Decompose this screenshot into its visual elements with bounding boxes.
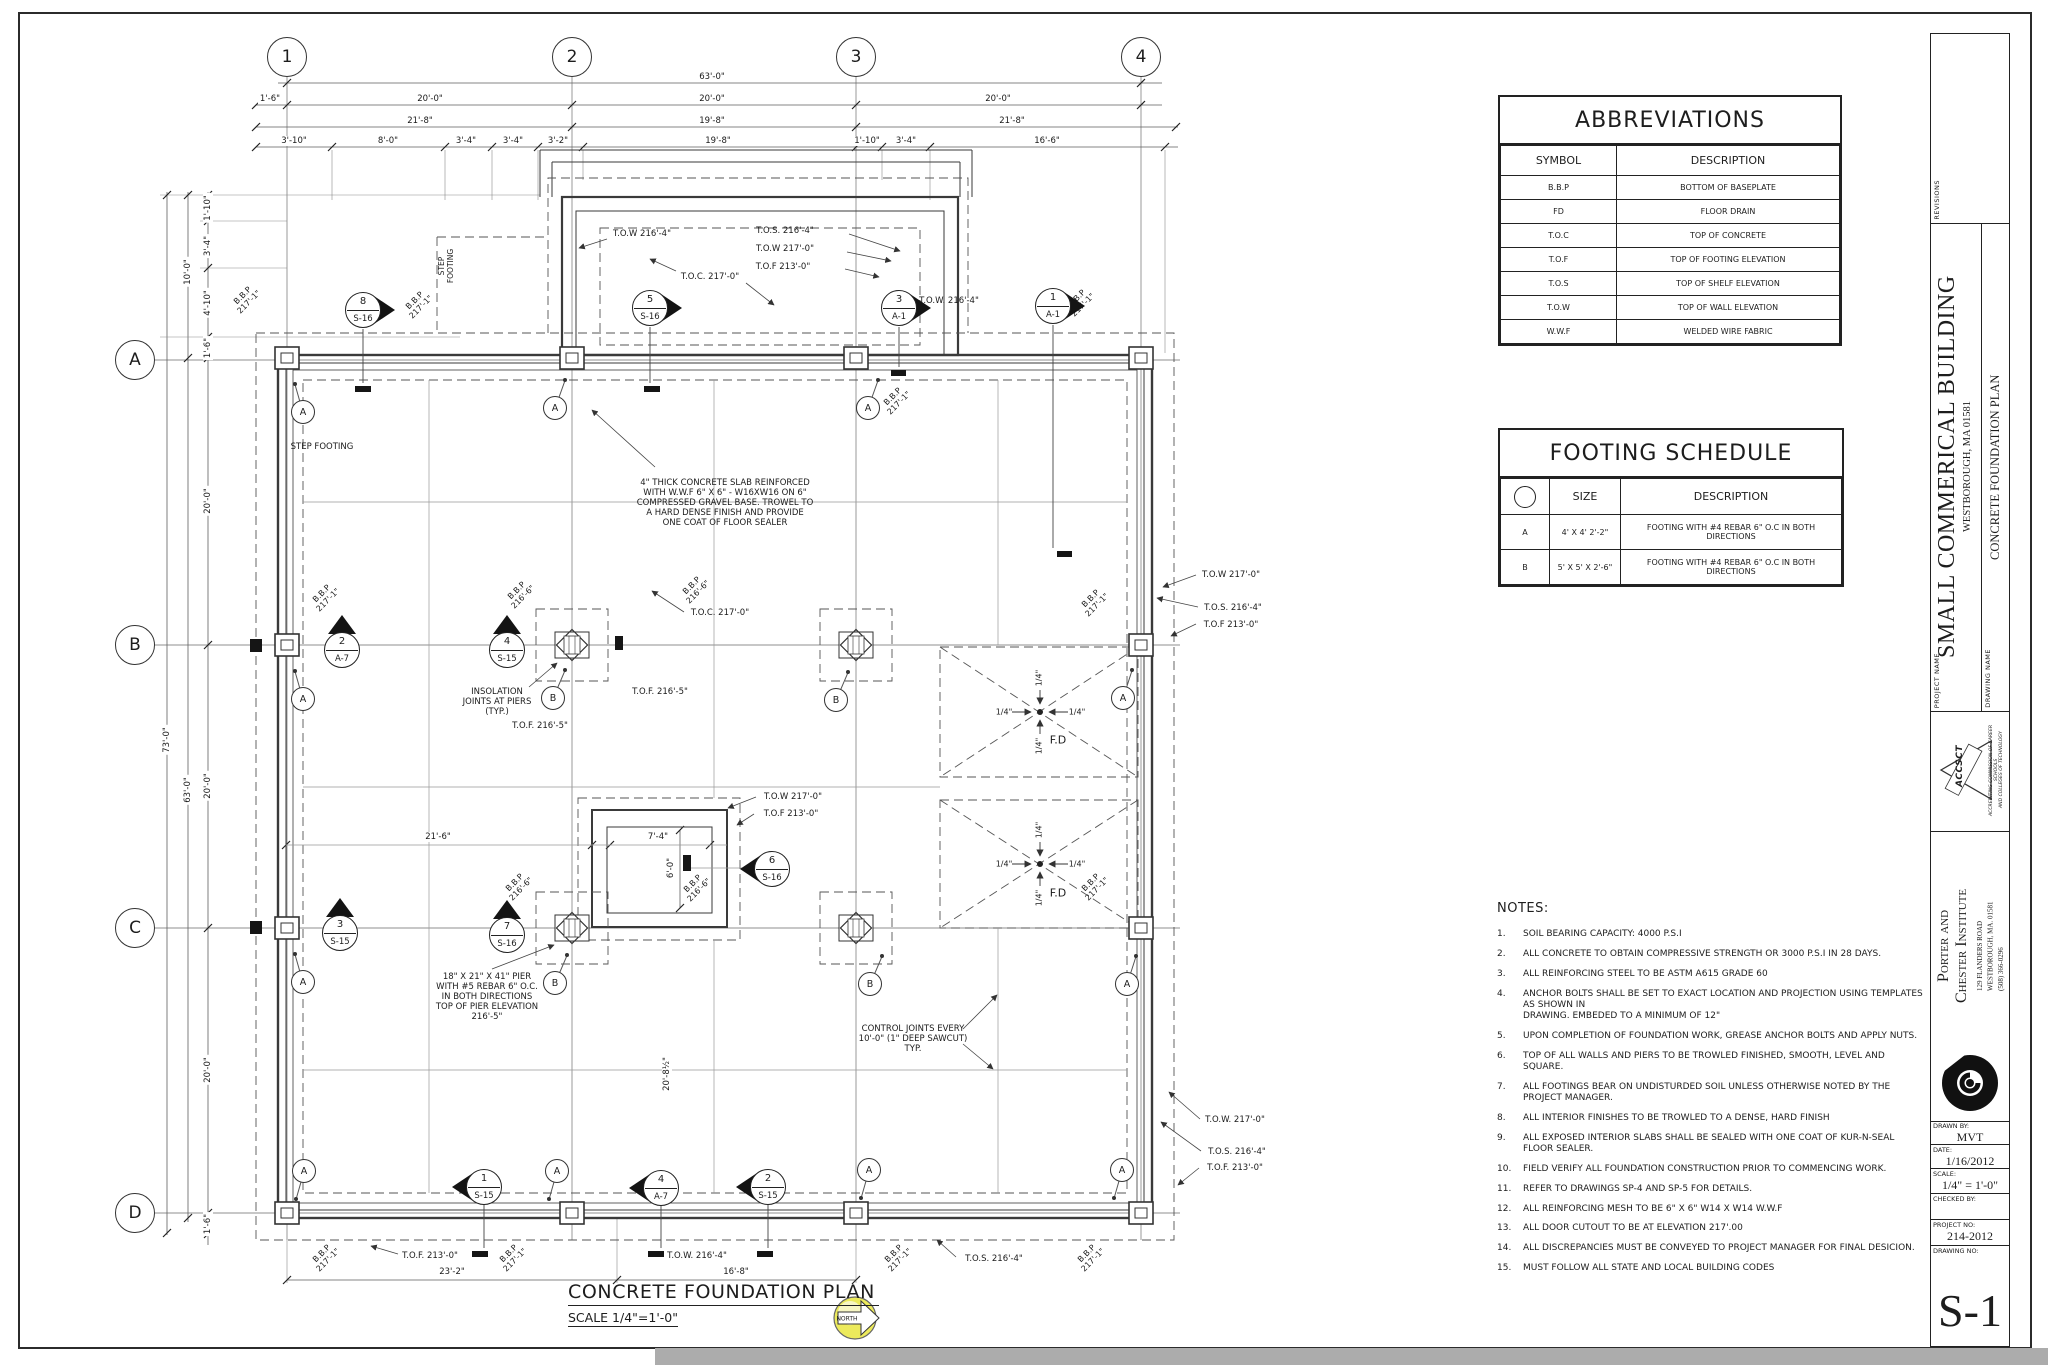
plan-label: 20'-8½" — [662, 1055, 672, 1093]
abbreviations-title: ABBREVIATIONS — [1500, 97, 1840, 145]
note-item-11: 11.REFER TO DRAWINGS SP-4 AND SP-5 FOR D… — [1497, 1184, 1925, 1195]
plan-label: 21'-8" — [997, 116, 1027, 126]
footing-tag-A: A — [857, 1158, 881, 1182]
screenshot-root: { "sheet": { "tables": { "abbreviations"… — [0, 0, 2048, 1365]
firm-box: Porter and Chester Institute 129 FLANDER… — [1931, 831, 2009, 1122]
plan-label: 3'-4" — [501, 136, 525, 146]
plan-label: B.B.P 217'-1" — [401, 287, 435, 321]
section-marker-1-A-1: 1A-1 — [1035, 288, 1071, 324]
footing-tag-B: B — [541, 686, 565, 710]
footing-tag-dot — [880, 954, 884, 958]
revisions-label: REVISIONS — [1933, 180, 1941, 220]
project-name-box: SMALL COMMERICAL BUILDING WESTBOROUGH, M… — [1931, 223, 2009, 712]
project-address: WESTBOROUGH, MA 01581 — [1962, 223, 1973, 711]
section-marker-2-A-7: 2A-7 — [324, 632, 360, 668]
footing-tag-A: A — [292, 1159, 316, 1183]
plan-label: 1'-6" — [203, 336, 213, 360]
footing-tag-dot — [293, 952, 297, 956]
section-marker-7-S-16: 7S-16 — [489, 917, 525, 953]
abbrev-row: T.O.WTOP OF WALL ELEVATION — [1501, 296, 1840, 320]
plan-label: T.O.S. 216'-4" — [756, 226, 814, 236]
firm-address: 129 FLANDERS ROAD WESTBOROUGH, MA. 01581… — [1975, 841, 2007, 1051]
viewer-bottom-bar — [655, 1348, 2048, 1365]
note-item-12: 12.ALL REINFORCING MESH TO BE 6" X 6" W1… — [1497, 1204, 1925, 1215]
section-marker-3-A-1: 3A-1 — [881, 290, 917, 326]
footing-tag-dot — [563, 668, 567, 672]
footing-schedule-title: FOOTING SCHEDULE — [1500, 430, 1842, 478]
section-marker-6-S-16: 6S-16 — [754, 851, 790, 887]
abbrev-row: B.B.PBOTTOM OF BASEPLATE — [1501, 176, 1840, 200]
section-marker-4-A-7: 4A-7 — [643, 1170, 679, 1206]
plan-label: 16'-8" — [721, 1267, 751, 1277]
section-marker-4-S-15: 4S-15 — [489, 632, 525, 668]
footing-tag-dot — [1134, 954, 1138, 958]
firm-name-1: Porter and — [1935, 841, 1953, 1051]
footing-tag-A: A — [291, 970, 315, 994]
note-item-1: 1.SOIL BEARING CAPACITY: 4000 P.S.I — [1497, 929, 1925, 940]
plan-label: CONTROL JOINTS EVERY 10'-0" (1" DEEP SAW… — [859, 1024, 968, 1054]
footing-tag-A: A — [856, 396, 880, 420]
abbrev-row: FDFLOOR DRAIN — [1501, 200, 1840, 224]
grid-bubble-col-3: 3 — [836, 37, 876, 77]
plan-label: B.B.P 217'-1" — [879, 383, 913, 417]
plan-label: 21'-6" — [423, 832, 453, 842]
plan-label: STEP FOOTING — [291, 442, 354, 452]
plan-label: 4" THICK CONCRETE SLAB REINFORCED WITH W… — [637, 478, 814, 528]
plan-label: 19'-8" — [697, 116, 727, 126]
title-block-fields: DRAWN BY:MVTDATE:1/16/2012SCALE:1/4" = 1… — [1931, 1121, 2009, 1346]
plan-label: B.B.P 216'-6" — [503, 577, 537, 611]
drawing-name: CONCRETE FOUNDATION PLAN — [1988, 223, 2003, 711]
notes-section: NOTES: 1.SOIL BEARING CAPACITY: 4000 P.S… — [1497, 901, 1925, 1283]
footing-schedule-table: FOOTING SCHEDULE SIZE DESCRIPTION A4' X … — [1498, 428, 1844, 587]
plan-label: 63'-0" — [697, 72, 727, 82]
footing-tag-dot — [1130, 668, 1134, 672]
tb-field-drawn-by-: DRAWN BY:MVT — [1931, 1121, 2009, 1145]
footing-tag-B: B — [858, 972, 882, 996]
plan-label: 1/4" — [1069, 859, 1086, 868]
plan-label: 6'-0" — [666, 856, 676, 880]
abbrev-row: T.O.STOP OF SHELF ELEVATION — [1501, 272, 1840, 296]
plan-label: B.B.P 216'-6" — [679, 870, 713, 904]
footing-tag-dot — [859, 1196, 863, 1200]
plan-label: 1/4" — [996, 859, 1013, 868]
plan-label: 1/4" — [1034, 670, 1043, 687]
footing-tag-dot — [547, 1197, 551, 1201]
note-item-3: 3.ALL REINFORCING STEEL TO BE ASTM A615 … — [1497, 969, 1925, 980]
title-block: REVISIONS SMALL COMMERICAL BUILDING WEST… — [1930, 33, 2010, 1347]
abbrev-header-description: DESCRIPTION — [1617, 146, 1840, 176]
plan-label: 23'-2" — [437, 1267, 467, 1277]
plan-label: T.O.F 213'-0" — [764, 809, 818, 819]
note-item-7: 7.ALL FOOTINGS BEAR ON UNDISTURDED SOIL … — [1497, 1082, 1925, 1105]
note-item-8: 8.ALL INTERIOR FINISHES TO BE TROWLED TO… — [1497, 1113, 1925, 1124]
footing-tag-B: B — [824, 688, 848, 712]
plan-label: 3'-2" — [546, 136, 570, 146]
plan-label: T.O.F 213'-0" — [756, 262, 810, 272]
plan-label: T.O.S. 216'-4" — [1208, 1147, 1266, 1157]
footing-tag-B: B — [543, 971, 567, 995]
project-name-label: PROJECT NAME — [1933, 653, 1941, 708]
firm-logo-icon — [1936, 1049, 2004, 1117]
notes-title: NOTES: — [1497, 901, 1925, 916]
plan-label: T.O.F. 216'-5" — [632, 687, 688, 697]
plan-label: T.O.W 216'-4" — [613, 229, 671, 239]
plan-label: B.B.P 216'-6" — [678, 572, 712, 606]
plan-label: 73'-0" — [162, 725, 172, 755]
note-item-4: 4.ANCHOR BOLTS SHALL BE SET TO EXACT LOC… — [1497, 989, 1925, 1023]
footing-tag-dot — [876, 378, 880, 382]
tb-field-date-: DATE:1/16/2012 — [1931, 1145, 2009, 1169]
plan-annotations: 1234ABCD63'-0"1'-6"20'-0"20'-0"20'-0"21'… — [0, 0, 1480, 1365]
tb-field-drawing-no-: DRAWING NO:S-1 — [1931, 1246, 2009, 1352]
section-marker-2-S-15: 2S-15 — [750, 1169, 786, 1205]
footing-symbol-header — [1501, 479, 1550, 515]
tb-field-scale-: SCALE:1/4" = 1'-0" — [1931, 1169, 2009, 1194]
plan-label: 16'-6" — [1032, 136, 1062, 146]
plan-label: STEP FOOTING — [438, 249, 456, 283]
plan-label: T.O.F. 213'-0" — [402, 1251, 458, 1261]
plan-label: T.O.W. 216'-4" — [667, 1251, 727, 1261]
footing-tag-dot — [1112, 1196, 1116, 1200]
tb-field-project-no-: PROJECT NO:214-2012 — [1931, 1220, 2009, 1246]
footing-tag-A: A — [1110, 1158, 1134, 1182]
grid-bubble-col-1: 1 — [267, 37, 307, 77]
grid-bubble-col-4: 4 — [1121, 37, 1161, 77]
plan-label: 3'-4" — [454, 136, 478, 146]
plan-label: B.B.P 217'-1" — [495, 1240, 529, 1274]
plan-label: B.B.P 217'-1" — [1077, 585, 1111, 619]
grid-bubble-row-C: C — [115, 908, 155, 948]
footing-tag-dot — [565, 953, 569, 957]
section-marker-5-S-16: 5S-16 — [632, 290, 668, 326]
footing-tag-A: A — [1115, 972, 1139, 996]
plan-label: 63'-0" — [183, 775, 193, 805]
plan-label: T.O.W 217'-0" — [1202, 570, 1260, 580]
plan-label: T.O.F. 216'-5" — [512, 721, 568, 731]
footing-tag-A: A — [545, 1159, 569, 1183]
plan-label: 21'-8" — [405, 116, 435, 126]
footing-tag-dot — [293, 382, 297, 386]
plan-label: T.O.F. 213'-0" — [1207, 1163, 1263, 1173]
plan-label: 1'-6" — [203, 1212, 213, 1236]
plan-label: F.D — [1050, 888, 1067, 901]
plan-label: 20'-0" — [415, 94, 445, 104]
plan-label: 4'-10" — [203, 288, 213, 318]
plan-label: B.B.P 217'-1" — [229, 282, 263, 316]
tb-field-checked-by-: CHECKED BY: — [1931, 1194, 2009, 1220]
plan-label: T.O.S. 216'-4" — [1204, 603, 1262, 613]
plan-label: 1/4" — [1069, 707, 1086, 716]
footing-tag-A: A — [1111, 686, 1135, 710]
revisions-box: REVISIONS — [1931, 34, 2009, 224]
footing-tag-dot — [294, 1197, 298, 1201]
plan-label: 1/4" — [996, 707, 1013, 716]
note-item-10: 10.FIELD VERIFY ALL FOUNDATION CONSTRUCT… — [1497, 1164, 1925, 1175]
plan-label: 7'-4" — [646, 832, 670, 842]
abbrev-row: T.O.CTOP OF CONCRETE — [1501, 224, 1840, 248]
accsct-line2: AND COLLEGES OF TECHNOLOGY — [1999, 715, 2004, 825]
grid-bubble-col-2: 2 — [552, 37, 592, 77]
plan-label: T.O.C. 217'-0" — [691, 608, 749, 618]
accsct-line1: ACCREDITING COMMISSION OF CAREER SCHOOLS — [1989, 715, 1999, 825]
notes-list: 1.SOIL BEARING CAPACITY: 4000 P.S.I2.ALL… — [1497, 929, 1925, 1274]
drawing-name-label: DRAWING NAME — [1984, 649, 1992, 708]
abbrev-row: T.O.FTOP OF FOOTING ELEVATION — [1501, 248, 1840, 272]
plan-label: F.D — [1050, 735, 1067, 748]
plan-label: T.O.C. 217'-0" — [681, 272, 739, 282]
plan-label: 19'-8" — [703, 136, 733, 146]
plan-label: T.O.F 213'-0" — [1204, 620, 1258, 630]
plan-label: INSOLATION JOINTS AT PIERS (TYP.) — [463, 687, 532, 717]
note-item-13: 13.ALL DOOR CUTOUT TO BE AT ELEVATION 21… — [1497, 1223, 1925, 1234]
plan-label: 1/4" — [1034, 822, 1043, 839]
plan-label: B.B.P 217'-1" — [308, 1240, 342, 1274]
plan-label: B.B.P 217'-1" — [880, 1240, 914, 1274]
footing-tag-dot — [563, 378, 567, 382]
grid-bubble-row-A: A — [115, 340, 155, 380]
note-item-2: 2.ALL CONCRETE TO OBTAIN COMPRESSIVE STR… — [1497, 949, 1925, 960]
footing-tag-dot — [846, 670, 850, 674]
note-item-14: 14.ALL DISCREPANCIES MUST BE CONVEYED TO… — [1497, 1243, 1925, 1254]
footing-row: B5' X 5' X 2'-6"FOOTING WITH #4 REBAR 6"… — [1501, 550, 1842, 585]
accsct-logo-box: ACCSCT ACCREDITING COMMISSION OF CAREER … — [1931, 711, 2009, 832]
footing-row: A4' X 4' 2'-2"FOOTING WITH #4 REBAR 6" O… — [1501, 515, 1842, 550]
plan-label: B.B.P 217'-1" — [1073, 1240, 1107, 1274]
note-item-6: 6.TOP OF ALL WALLS AND PIERS TO BE TROWL… — [1497, 1051, 1925, 1074]
footing-header-description: DESCRIPTION — [1621, 479, 1842, 515]
grid-bubble-row-D: D — [115, 1193, 155, 1233]
accsct-name: ACCSCT — [1955, 745, 1965, 787]
section-marker-1-S-15: 1S-15 — [466, 1169, 502, 1205]
section-marker-3-S-15: 3S-15 — [322, 915, 358, 951]
plan-label: 20'-0" — [203, 1055, 213, 1085]
plan-label: B.B.P 217'-1" — [1077, 869, 1111, 903]
plan-label: 1'-10" — [852, 136, 882, 146]
plan-label: 20'-0" — [983, 94, 1013, 104]
plan-label: T.O.W 217'-0" — [756, 244, 814, 254]
plan-label: T.O.S. 216'-4" — [965, 1254, 1023, 1264]
plan-label: 20'-0" — [697, 94, 727, 104]
plan-label: 20'-0" — [203, 486, 213, 516]
plan-label: B.B.P 217'-1" — [308, 580, 342, 614]
plan-scale: SCALE 1/4"=1'-0" — [568, 1310, 678, 1327]
grid-bubble-row-B: B — [115, 625, 155, 665]
plan-label: B.B.P 216'-6" — [501, 869, 535, 903]
section-marker-8-S-16: 8S-16 — [345, 292, 381, 328]
abbrev-header-symbol: SYMBOL — [1501, 146, 1617, 176]
plan-label: 20'-0" — [203, 771, 213, 801]
plan-title: CONCRETE FOUNDATION PLAN — [568, 1281, 879, 1306]
note-item-15: 15.MUST FOLLOW ALL STATE AND LOCAL BUILD… — [1497, 1263, 1925, 1274]
project-name: SMALL COMMERICAL BUILDING — [1934, 223, 1961, 711]
plan-label: 10'-0" — [183, 257, 193, 287]
abbreviations-table: ABBREVIATIONS SYMBOL DESCRIPTION B.B.PBO… — [1498, 95, 1842, 346]
plan-label: T.O.W. 217'-0" — [1205, 1115, 1265, 1125]
plan-label: T.O.W 217'-0" — [764, 792, 822, 802]
abbrev-row: W.W.FWELDED WIRE FABRIC — [1501, 320, 1840, 344]
plan-label: 18" X 21" X 41" PIER WITH #5 REBAR 6" O.… — [436, 972, 538, 1022]
footing-tag-A: A — [291, 400, 315, 424]
plan-label: 1'-6" — [258, 94, 282, 104]
plan-label: 1/4" — [1034, 738, 1043, 755]
plan-label: 1'-10" — [203, 193, 213, 223]
firm-name-2: Chester Institute — [1953, 841, 1971, 1051]
footing-tag-dot — [293, 669, 297, 673]
note-item-5: 5.UPON COMPLETION OF FOUNDATION WORK, GR… — [1497, 1031, 1925, 1042]
footing-tag-A: A — [291, 687, 315, 711]
plan-label: 1/4" — [1034, 890, 1043, 907]
footing-header-size: SIZE — [1550, 479, 1621, 515]
footing-symbol-circle-icon — [1514, 486, 1536, 508]
plan-label: 3'-10" — [279, 136, 309, 146]
note-item-9: 9.ALL EXPOSED INTERIOR SLABS SHALL BE SE… — [1497, 1133, 1925, 1156]
plan-label: 3'-4" — [203, 234, 213, 258]
north-label: NORTH — [836, 1315, 857, 1322]
plan-label: 3'-4" — [894, 136, 918, 146]
footing-tag-A: A — [543, 396, 567, 420]
plan-label: 8'-0" — [376, 136, 400, 146]
